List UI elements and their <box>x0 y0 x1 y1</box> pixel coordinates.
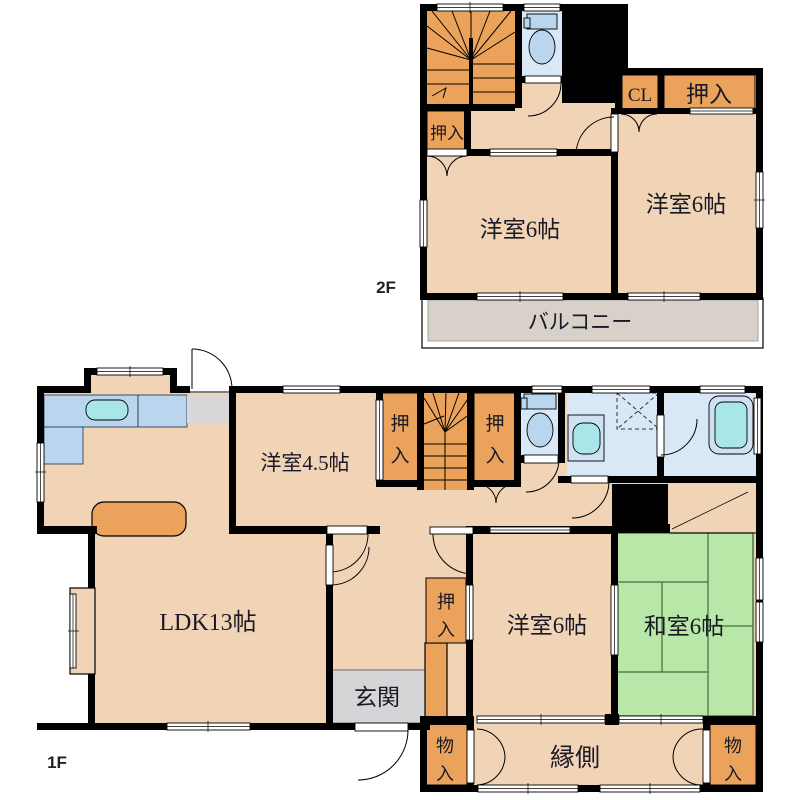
label-closet-top-2f: 押入 <box>686 82 732 107</box>
label-floor-2: 2F <box>376 278 396 297</box>
svg-text:押: 押 <box>437 592 455 612</box>
staircase-2f <box>427 11 515 106</box>
toilet-room-1f <box>521 390 562 457</box>
svg-text:入: 入 <box>436 764 454 784</box>
appliance-space <box>187 395 233 423</box>
label-engawa: 縁側 <box>550 744 600 772</box>
toilet-room-2f <box>522 11 562 76</box>
closet-b <box>474 393 517 483</box>
washbasin-icon <box>568 415 604 461</box>
svg-text:入: 入 <box>724 764 742 784</box>
label-western-left-2f: 洋室6帖 <box>480 217 561 242</box>
label-floor-1: 1F <box>47 753 67 772</box>
svg-text:押: 押 <box>390 413 409 435</box>
label-western45: 洋室4.5帖 <box>260 451 349 475</box>
sink-icon <box>86 400 128 420</box>
closet-a <box>380 393 420 483</box>
label-closet-left-2f: 押入 <box>430 124 464 143</box>
bathtub-icon <box>709 396 753 454</box>
floor-plan-svg: 洋室6帖 洋室6帖 CL 押入 押入 バルコニー 2F <box>0 0 800 800</box>
floor-1: LDK13帖 洋室4.5帖 洋室6帖 和室6帖 玄関 縁側 押 入 押 入 押 … <box>35 349 763 794</box>
floor-2: 洋室6帖 洋室6帖 CL 押入 押入 バルコニー 2F <box>376 2 765 348</box>
svg-text:物: 物 <box>724 736 742 756</box>
label-cl: CL <box>628 85 652 106</box>
label-genkan: 玄関 <box>354 685 400 710</box>
label-western6-1f: 洋室6帖 <box>507 613 588 638</box>
svg-text:入: 入 <box>437 620 455 640</box>
label-ldk: LDK13帖 <box>159 609 256 636</box>
svg-text:入: 入 <box>485 446 504 467</box>
svg-text:入: 入 <box>390 446 409 467</box>
washroom <box>567 390 659 480</box>
staircase-1f <box>424 390 470 490</box>
label-japanese6: 和室6帖 <box>644 614 725 639</box>
label-western-right-2f: 洋室6帖 <box>646 192 727 217</box>
floor-plan: 洋室6帖 洋室6帖 CL 押入 押入 バルコニー 2F <box>0 0 800 800</box>
bay-window <box>68 588 95 674</box>
svg-text:押: 押 <box>485 413 504 435</box>
counter-island <box>92 502 186 536</box>
shoe-cabinet <box>425 643 447 723</box>
bathroom <box>663 390 756 480</box>
label-balcony: バルコニー <box>528 310 633 334</box>
svg-text:物: 物 <box>436 736 454 756</box>
void-1f <box>612 484 668 524</box>
